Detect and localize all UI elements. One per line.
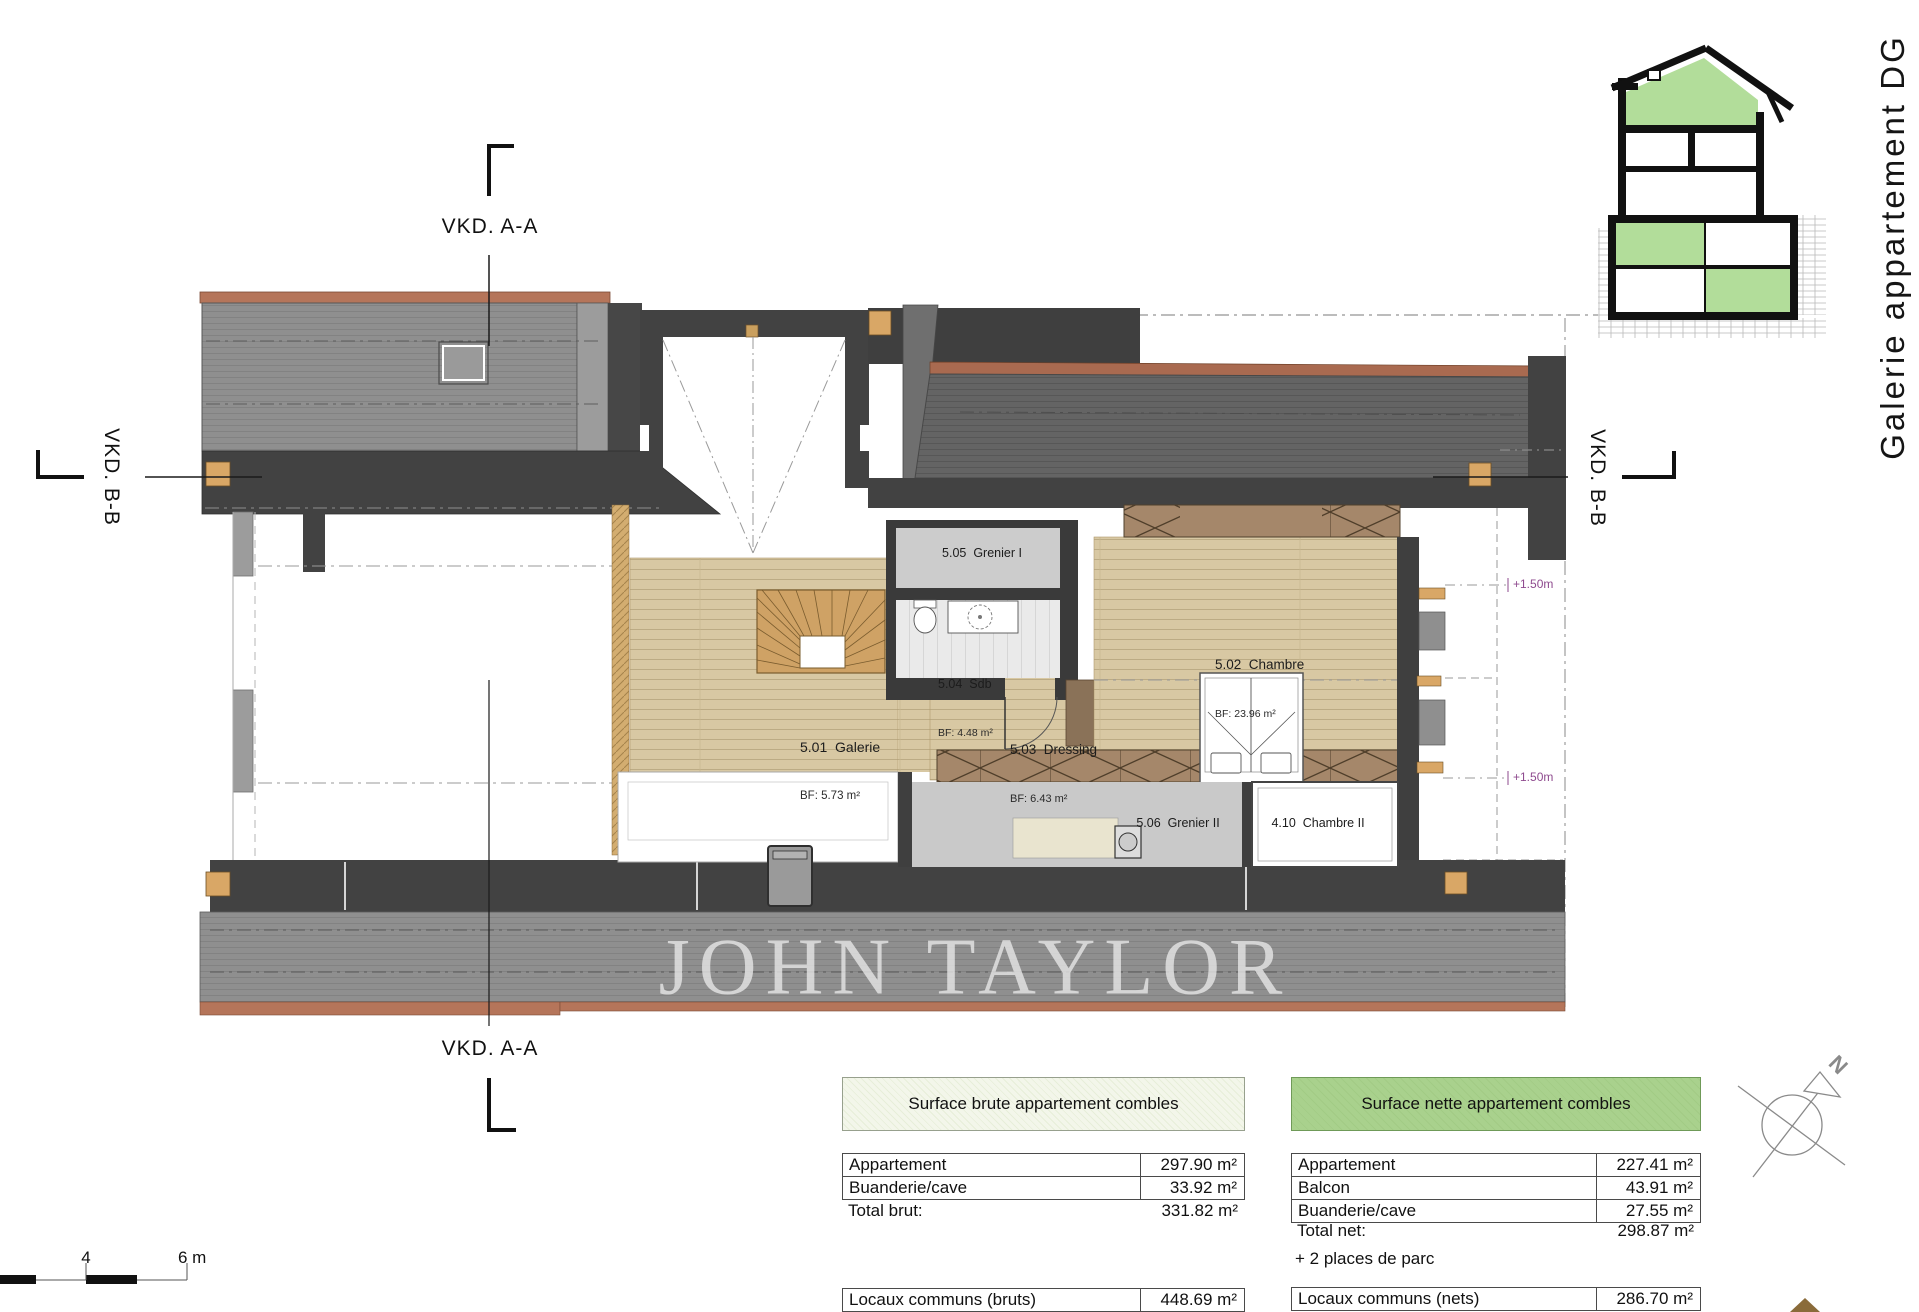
north-arrow-icon bbox=[1738, 1072, 1845, 1177]
section-label-aa-bottom: VKD. A-A bbox=[442, 1037, 539, 1061]
level-annotation-lower: +1.50m bbox=[1513, 770, 1553, 784]
room-label-sdb: 5.04 Sdb BF: 4.48 m² bbox=[938, 641, 993, 775]
toilet-icon bbox=[914, 600, 936, 633]
staircase bbox=[757, 590, 885, 673]
knee-wall-top bbox=[1124, 505, 1400, 537]
wood-post bbox=[746, 325, 758, 337]
room-label-grenier2: 5.06 Grenier II bbox=[1136, 816, 1219, 830]
section-marker-bb-left bbox=[38, 450, 84, 477]
wood-post bbox=[1445, 872, 1467, 894]
table-row: Locaux communs (nets) 286.70 m² bbox=[1292, 1288, 1700, 1310]
section-label-bb-right: VKD. B-B bbox=[1585, 429, 1609, 527]
watermark: JOHN TAYLOR bbox=[659, 923, 1292, 1014]
wood-post bbox=[206, 462, 230, 486]
chimney bbox=[768, 846, 812, 906]
scale-tick-4: 4 bbox=[81, 1248, 90, 1268]
locaux-nets-box: Locaux communs (nets) 286.70 m² bbox=[1291, 1287, 1701, 1311]
knee-wall-bottom bbox=[937, 750, 1400, 782]
room-label-dressing: 5.03 Dressing BF: 6.43 m² bbox=[1010, 707, 1097, 841]
washing-machine-icon bbox=[1115, 826, 1141, 858]
room-label-galerie: 5.01 Galerie BF: 5.73 m² bbox=[800, 704, 880, 838]
table-row: Appartement 227.41 m² bbox=[1292, 1154, 1700, 1176]
room-label-grenier1: 5.05 Grenier I bbox=[942, 546, 1022, 560]
sheet-title: Galerie appartement DG bbox=[1874, 34, 1912, 460]
wood-post bbox=[1417, 762, 1443, 773]
floor-plan-sheet: VKD. A-A VKD. A-A VKD. B-B VKD. B-B Gale… bbox=[0, 0, 1919, 1312]
left-interior bbox=[205, 505, 660, 862]
table-row: Locaux communs (bruts) 448.69 m² bbox=[843, 1289, 1244, 1311]
total-brut-row: Total brut: 331.82 m² bbox=[842, 1200, 1245, 1222]
section-label-bb-left: VKD. B-B bbox=[99, 428, 123, 526]
section-marker-aa-bottom bbox=[489, 1078, 516, 1130]
parking-note: + 2 places de parc bbox=[1295, 1249, 1434, 1269]
table-row: Balcon 43.91 m² bbox=[1292, 1176, 1700, 1199]
room-label-chambre: 5.02 Chambre BF: 23.96 m² bbox=[1215, 622, 1304, 756]
building-section-icon bbox=[1598, 48, 1826, 338]
surface-brute-header: Surface brute appartement combles bbox=[842, 1077, 1245, 1131]
vanity-sink-icon bbox=[948, 601, 1018, 633]
section-marker-aa-top bbox=[489, 146, 514, 196]
wood-post bbox=[869, 311, 891, 335]
valley-lines bbox=[663, 337, 845, 553]
table-row: Buanderie/cave 27.55 m² bbox=[1292, 1199, 1700, 1222]
surface-brute-rows: Appartement 297.90 m² Buanderie/cave 33.… bbox=[842, 1153, 1245, 1200]
door-opening bbox=[1005, 678, 1055, 700]
locaux-bruts-box: Locaux communs (bruts) 448.69 m² bbox=[842, 1288, 1245, 1312]
level-annotation-upper: +1.50m bbox=[1513, 577, 1553, 591]
surface-nette-table: Surface nette appartement combles Appart… bbox=[1291, 1077, 1701, 1312]
section-label-aa-top: VKD. A-A bbox=[442, 215, 539, 239]
wall-stub bbox=[303, 510, 325, 572]
cropped-logo bbox=[1790, 1298, 1820, 1312]
surface-nette-rows: Appartement 227.41 m² Balcon 43.91 m² Bu… bbox=[1291, 1153, 1701, 1223]
courtyard-void bbox=[640, 310, 869, 553]
room-label-chambre2: 4.10 Chambre II bbox=[1271, 816, 1364, 830]
surface-nette-header: Surface nette appartement combles bbox=[1291, 1077, 1701, 1131]
wood-post bbox=[206, 872, 230, 896]
scale-bar bbox=[0, 1263, 187, 1284]
wood-post bbox=[1469, 463, 1491, 486]
wood-post bbox=[1419, 588, 1445, 599]
skylight bbox=[439, 342, 488, 384]
table-row: Buanderie/cave 33.92 m² bbox=[843, 1176, 1244, 1199]
table-row: Appartement 297.90 m² bbox=[843, 1154, 1244, 1176]
scale-tick-6m: 6 m bbox=[178, 1248, 206, 1268]
section-marker-bb-right bbox=[1622, 451, 1674, 477]
surface-brute-table: Surface brute appartement combles Appart… bbox=[842, 1077, 1245, 1312]
wood-post bbox=[1417, 676, 1441, 686]
total-net-row: Total net: 298.87 m² bbox=[1291, 1220, 1701, 1242]
